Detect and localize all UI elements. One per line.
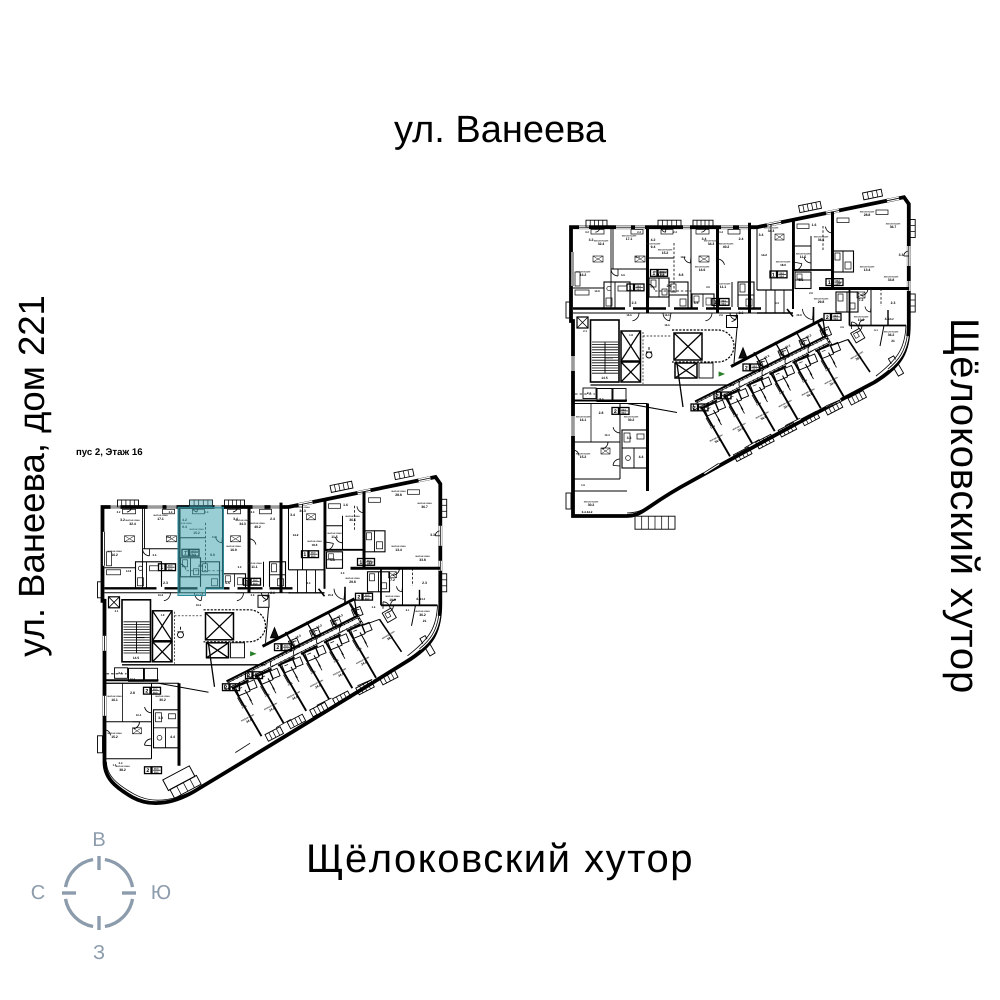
svg-text:ЖИЛАЯ КОМН: ЖИЛАЯ КОМН: [886, 222, 901, 225]
svg-text:2: 2: [145, 689, 148, 695]
svg-text:2.4: 2.4: [169, 511, 173, 514]
svg-text:ЖИЛАЯ КОМН: ЖИЛАЯ КОМН: [622, 234, 637, 237]
svg-text:00.0: 00.0: [621, 412, 626, 415]
svg-text:2: 2: [826, 315, 829, 321]
svg-text:2: 2: [693, 405, 696, 411]
svg-text:30.2: 30.2: [588, 503, 595, 507]
svg-text:5.5: 5.5: [153, 554, 157, 557]
svg-text:1: 1: [772, 272, 775, 278]
svg-text:ЖИЛАЯ КОМН: ЖИЛАЯ КОМН: [860, 265, 875, 268]
svg-text:ЖИЛАЯ КОМН: ЖИЛАЯ КОМН: [658, 248, 673, 251]
svg-text:8.8: 8.8: [679, 273, 684, 277]
svg-text:00.0: 00.0: [621, 408, 626, 411]
svg-text:ЖИЛАЯ КОМН: ЖИЛАЯ КОМН: [345, 577, 360, 580]
svg-text:00.0: 00.0: [168, 568, 173, 571]
svg-text:3.3: 3.3: [307, 582, 311, 585]
svg-text:00.0: 00.0: [255, 673, 260, 676]
svg-text:1: 1: [245, 580, 248, 586]
svg-text:9.4: 9.4: [651, 245, 656, 249]
svg-text:ЖИЛАЯ КОМН: ЖИЛАЯ КОМН: [391, 545, 406, 548]
svg-text:29.8: 29.8: [818, 300, 825, 304]
svg-text:3.4: 3.4: [759, 233, 764, 237]
svg-text:00.0: 00.0: [311, 552, 316, 555]
svg-text:ЖИЛАЯ КОМН: ЖИЛАЯ КОМН: [391, 490, 406, 493]
svg-text:10.6: 10.6: [389, 598, 396, 602]
svg-text:ЖИЛАЯ КОМН: ЖИЛАЯ КОМН: [576, 452, 591, 455]
svg-text:00.0: 00.0: [154, 768, 159, 771]
svg-text:2.4: 2.4: [637, 231, 641, 234]
svg-text:2: 2: [716, 393, 719, 399]
svg-text:2.3: 2.3: [163, 581, 168, 585]
svg-text:2.8: 2.8: [130, 691, 135, 695]
svg-text:16.6: 16.6: [196, 604, 202, 607]
svg-text:ЖИЛАЯ КОМН: ЖИЛАЯ КОМН: [796, 252, 811, 255]
svg-text:2.1: 2.1: [118, 671, 123, 675]
svg-text:2.6: 2.6: [840, 326, 844, 329]
svg-text:2.4: 2.4: [270, 517, 275, 521]
svg-text:36.5: 36.5: [818, 238, 825, 242]
svg-text:ЖИЛАЯ КОМН: ЖИЛАЯ КОМН: [417, 502, 432, 505]
svg-text:5.5: 5.5: [621, 274, 625, 277]
svg-text:16.2: 16.2: [580, 273, 587, 277]
svg-text:ЖИЛАЯ КОМН: ЖИЛАЯ КОМН: [854, 315, 869, 318]
svg-text:2: 2: [357, 595, 360, 601]
svg-text:34.3: 34.3: [708, 242, 715, 246]
svg-text:00.0: 00.0: [255, 676, 260, 679]
svg-text:00.0: 00.0: [311, 555, 316, 558]
svg-text:ЖИЛАЯ КОМН: ЖИЛАЯ КОМН: [345, 515, 360, 518]
svg-text:3.2: 3.2: [120, 518, 125, 522]
svg-text:ЖИЛАЯ КОМН: ЖИЛАЯ КОМН: [814, 235, 829, 238]
svg-text:пус 2, Этаж 16: пус 2, Этаж 16: [76, 447, 143, 458]
svg-text:2: 2: [146, 768, 149, 774]
svg-text:ЖИЛАЯ КОМН: ЖИЛАЯ КОМН: [385, 595, 400, 598]
svg-text:ЖИЛАЯ КОМН: ЖИЛАЯ КОМН: [295, 506, 310, 509]
svg-text:2.6: 2.6: [739, 311, 744, 315]
svg-text:13.2: 13.2: [420, 597, 426, 601]
svg-text:16.6: 16.6: [664, 324, 670, 327]
svg-text:1.6: 1.6: [812, 223, 817, 227]
svg-text:ЖИЛАЯ КОМН: ЖИЛАЯ КОМН: [776, 260, 791, 263]
svg-text:40.2: 40.2: [254, 525, 261, 529]
svg-text:36.2: 36.2: [888, 333, 895, 337]
svg-text:ЖИЛАЯ КОМН: ЖИЛАЯ КОМН: [415, 555, 430, 558]
svg-text:3.8: 3.8: [837, 282, 841, 285]
svg-text:00.0: 00.0: [253, 579, 258, 582]
svg-text:3.4: 3.4: [290, 513, 295, 517]
svg-text:2.3: 2.3: [891, 301, 896, 305]
svg-text:3.4: 3.4: [719, 231, 723, 234]
svg-text:ЖИЛАЯ КОМН: ЖИЛАЯ КОМН: [415, 610, 430, 613]
svg-text:1: 1: [303, 552, 306, 558]
svg-text:32.4: 32.4: [129, 522, 136, 526]
svg-text:00.0: 00.0: [153, 692, 158, 695]
svg-text:34.3: 34.3: [768, 229, 775, 233]
svg-text:2: 2: [745, 365, 748, 371]
svg-text:18.6: 18.6: [780, 263, 786, 267]
svg-text:21: 21: [891, 339, 895, 343]
svg-text:ЖИЛАЯ КОМН: ЖИЛАЯ КОМН: [860, 210, 875, 213]
svg-text:В: В: [92, 829, 105, 851]
svg-text:ЖИЛАЯ КОМН: ЖИЛАЯ КОМН: [107, 695, 122, 698]
svg-text:ЖИЛАЯ КОМН: ЖИЛАЯ КОМН: [307, 540, 322, 543]
svg-text:ЖИЛАЯ КОМН: ЖИЛАЯ КОМН: [576, 415, 591, 418]
svg-text:00.0: 00.0: [154, 771, 159, 774]
svg-text:00.0: 00.0: [253, 583, 258, 586]
svg-text:2.0: 2.0: [809, 292, 813, 295]
svg-text:ЖИЛАЯ КОМН: ЖИЛАЯ КОМН: [884, 275, 899, 278]
svg-text:1: 1: [359, 560, 362, 566]
svg-text:2.6: 2.6: [372, 606, 376, 609]
svg-text:ЖИЛАЯ КОМН: ЖИЛАЯ КОМН: [719, 242, 734, 245]
svg-text:33.8: 33.8: [888, 278, 895, 282]
svg-text:4.4: 4.4: [639, 455, 644, 459]
svg-text:1.6: 1.6: [343, 503, 348, 507]
svg-text:14.2: 14.2: [761, 253, 767, 257]
svg-text:15.2: 15.2: [111, 735, 118, 739]
svg-text:00.0: 00.0: [833, 318, 838, 321]
svg-text:ЖИЛАЯ КОМН: ЖИЛАЯ КОМН: [250, 522, 265, 525]
svg-text:00.0: 00.0: [752, 368, 757, 371]
svg-text:00.0: 00.0: [232, 688, 237, 691]
svg-text:28.8: 28.8: [395, 493, 402, 497]
svg-text:1: 1: [714, 300, 717, 306]
svg-text:00.0: 00.0: [779, 272, 784, 275]
svg-text:ЖИЛАЯ КОМН: ЖИЛАЯ КОМН: [327, 532, 342, 535]
svg-text:6.1: 6.1: [874, 329, 878, 332]
svg-text:5.6: 5.6: [330, 558, 335, 562]
svg-text:14.5: 14.5: [133, 656, 139, 660]
svg-text:2.0: 2.0: [341, 572, 345, 575]
svg-text:2: 2: [247, 673, 250, 679]
svg-text:17.1: 17.1: [626, 237, 633, 241]
svg-text:ЖИЛАЯ КОМН: ЖИЛАЯ КОМН: [584, 500, 599, 503]
svg-text:ЖИЛАЯ КОМН: ЖИЛАЯ КОМН: [576, 270, 591, 273]
svg-text:3.0: 3.0: [706, 286, 710, 289]
svg-text:ЖИЛАЯ КОМН: ЖИЛАЯ КОМН: [764, 226, 779, 229]
svg-text:10.4: 10.4: [136, 714, 142, 717]
svg-text:ул. Ванеева, дом 221: ул. Ванеева, дом 221: [11, 295, 52, 657]
svg-text:14.8: 14.8: [594, 290, 600, 293]
svg-text:2.3: 2.3: [422, 581, 427, 585]
svg-text:21: 21: [423, 619, 427, 623]
svg-text:2.1: 2.1: [115, 610, 119, 613]
svg-text:6.1: 6.1: [406, 609, 410, 612]
svg-text:00.0: 00.0: [168, 565, 173, 568]
svg-text:Щёлоковский хутор: Щёлоковский хутор: [942, 318, 986, 694]
svg-text:2.1: 2.1: [587, 391, 592, 395]
svg-text:3.4: 3.4: [251, 511, 255, 514]
svg-text:00.0: 00.0: [779, 275, 784, 278]
svg-text:2.4: 2.4: [739, 237, 744, 241]
svg-text:ЖИЛАЯ КОМН: ЖИЛАЯ КОМН: [594, 239, 609, 242]
svg-text:36.7: 36.7: [421, 505, 428, 509]
svg-text:3.8: 3.8: [369, 562, 373, 565]
svg-text:Щёлоковский хутор: Щёлоковский хутор: [306, 837, 694, 881]
svg-text:14.5: 14.5: [601, 376, 607, 380]
svg-text:34.3: 34.3: [239, 522, 246, 526]
svg-text:00.0: 00.0: [723, 396, 728, 399]
svg-text:С: С: [31, 882, 45, 904]
svg-text:ЖИЛАЯ КОМН: ЖИЛАЯ КОМН: [704, 239, 719, 242]
svg-text:5.6: 5.6: [799, 278, 804, 282]
svg-text:3.3: 3.3: [430, 533, 435, 537]
svg-text:16.9: 16.9: [230, 548, 237, 552]
svg-text:16.2: 16.2: [111, 553, 118, 557]
svg-text:10.1: 10.1: [680, 256, 686, 259]
svg-text:11.5: 11.5: [331, 535, 338, 539]
svg-text:11.5: 11.5: [800, 255, 807, 259]
svg-text:16.6: 16.6: [158, 594, 164, 597]
svg-text:00.0: 00.0: [232, 685, 237, 688]
svg-text:00.0: 00.0: [721, 299, 726, 302]
svg-text:ЖИЛАЯ КОМН: ЖИЛАЯ КОМН: [155, 695, 170, 698]
svg-text:16.6: 16.6: [598, 398, 604, 401]
svg-text:3.3: 3.3: [158, 716, 163, 720]
svg-text:3.4: 3.4: [119, 761, 123, 765]
svg-text:13.2: 13.2: [888, 317, 894, 321]
svg-text:7.2: 7.2: [859, 298, 864, 302]
svg-text:2.3: 2.3: [632, 301, 637, 305]
svg-text:10.4: 10.4: [604, 434, 610, 437]
svg-text:29.8: 29.8: [796, 314, 802, 317]
svg-text:00.0: 00.0: [636, 288, 641, 291]
svg-text:29.8: 29.8: [328, 594, 334, 597]
svg-text:ЖИЛАЯ КОМН: ЖИЛАЯ КОМН: [153, 514, 168, 517]
svg-text:3.3: 3.3: [775, 302, 779, 305]
svg-text:16.4: 16.4: [634, 256, 640, 259]
svg-text:15.2: 15.2: [662, 251, 669, 255]
svg-text:2: 2: [224, 685, 227, 691]
svg-text:00.0: 00.0: [723, 393, 728, 396]
svg-text:ЖИЛАЯ КОМН: ЖИЛАЯ КОМН: [247, 562, 262, 565]
svg-text:З: З: [93, 942, 105, 964]
svg-text:1.6: 1.6: [581, 484, 585, 487]
svg-text:3.2: 3.2: [589, 238, 594, 242]
svg-text:00.0: 00.0: [284, 645, 289, 648]
svg-text:34.3: 34.3: [299, 509, 306, 513]
svg-text:28.8: 28.8: [864, 213, 871, 217]
svg-text:16.6: 16.6: [626, 314, 632, 317]
svg-text:16.9: 16.9: [699, 268, 706, 272]
svg-text:16.6: 16.6: [664, 314, 670, 317]
svg-text:38.2: 38.2: [119, 768, 126, 772]
svg-text:32.4: 32.4: [598, 242, 605, 246]
svg-text:00.0: 00.0: [721, 303, 726, 306]
svg-text:2.8: 2.8: [599, 411, 604, 415]
svg-text:ЖИЛАЯ КОМН: ЖИЛАЯ КОМН: [125, 519, 140, 522]
svg-text:00.0: 00.0: [752, 365, 757, 368]
svg-text:14.2: 14.2: [293, 533, 299, 537]
svg-text:00.0: 00.0: [284, 648, 289, 651]
svg-text:36.2: 36.2: [419, 613, 426, 617]
svg-text:1.6: 1.6: [113, 764, 117, 767]
svg-text:10.6: 10.6: [858, 318, 865, 322]
svg-text:16.6: 16.6: [130, 678, 136, 681]
svg-text:3.3: 3.3: [627, 436, 632, 440]
svg-text:36.5: 36.5: [349, 518, 356, 522]
svg-text:00.0: 00.0: [153, 688, 158, 691]
svg-text:1.8: 1.8: [629, 334, 633, 337]
svg-text:2.6: 2.6: [270, 591, 275, 595]
svg-text:16.4: 16.4: [166, 536, 172, 539]
svg-text:ЖИЛАЯ КОМН: ЖИЛАЯ КОМН: [654, 270, 669, 273]
svg-text:4.4: 4.4: [170, 735, 175, 739]
svg-text:2.6: 2.6: [251, 594, 255, 597]
svg-text:1: 1: [160, 565, 163, 571]
svg-text:4.2: 4.2: [651, 238, 656, 242]
svg-text:ЖИЛАЯ КОМН: ЖИЛАЯ КОМН: [107, 732, 122, 735]
svg-text:16.1: 16.1: [580, 418, 587, 422]
svg-text:ЖИЛАЯ КОМН: ЖИЛАЯ КОМН: [226, 545, 241, 548]
svg-text:11.1: 11.1: [251, 565, 258, 569]
svg-text:ЖИЛАЯ КОМН: ЖИЛАЯ КОМН: [235, 519, 250, 522]
svg-text:ЖИЛАЯ КОМН: ЖИЛАЯ КОМН: [624, 415, 639, 418]
svg-text:1: 1: [629, 285, 632, 291]
svg-text:7.2: 7.2: [390, 578, 395, 582]
svg-text:00.0: 00.0: [700, 408, 705, 411]
svg-text:Ю: Ю: [151, 882, 171, 904]
svg-text:3.0: 3.0: [238, 566, 242, 569]
svg-text:2.4: 2.4: [673, 231, 677, 234]
svg-text:15.2: 15.2: [580, 455, 587, 459]
svg-text:2.9: 2.9: [667, 284, 672, 288]
svg-text:1.8: 1.8: [161, 614, 165, 617]
svg-text:14.8: 14.8: [126, 570, 132, 573]
svg-text:00.0: 00.0: [700, 405, 705, 408]
svg-text:00.0: 00.0: [365, 594, 370, 597]
svg-text:3.3: 3.3: [899, 253, 904, 257]
svg-text:ЖИЛАЯ КОМН: ЖИЛАЯ КОМН: [695, 265, 710, 268]
svg-text:ЖИЛАЯ КОМН: ЖИЛАЯ КОМН: [646, 242, 661, 245]
svg-text:3.2: 3.2: [585, 231, 589, 234]
svg-text:2.1: 2.1: [583, 330, 587, 333]
svg-text:29.8: 29.8: [349, 580, 356, 584]
svg-text:2.6: 2.6: [719, 314, 723, 317]
svg-text:00.0: 00.0: [365, 598, 370, 601]
svg-text:ул. Ванеева: ул. Ванеева: [394, 109, 607, 151]
svg-text:00.0: 00.0: [636, 285, 641, 288]
svg-text:30.2: 30.2: [159, 698, 166, 702]
svg-text:ЖИЛАЯ КОМН: ЖИЛАЯ КОМН: [107, 550, 122, 553]
svg-text:17.3: 17.3: [658, 273, 665, 277]
svg-text:40.2: 40.2: [723, 245, 730, 249]
svg-text:13.4: 13.4: [864, 268, 871, 272]
svg-text:18.6: 18.6: [312, 543, 318, 547]
svg-text:ЖИЛАЯ КОМН: ЖИЛАЯ КОМН: [814, 297, 829, 300]
svg-text:ЖИЛАЯ КОМН: ЖИЛАЯ КОМН: [716, 282, 731, 285]
svg-text:11.1: 11.1: [720, 285, 727, 289]
svg-text:33.8: 33.8: [419, 558, 426, 562]
svg-text:2: 2: [614, 409, 617, 415]
svg-text:2: 2: [276, 645, 279, 651]
svg-text:ЖИЛАЯ КОМН: ЖИЛАЯ КОМН: [115, 765, 130, 768]
svg-text:16.1: 16.1: [111, 698, 118, 702]
svg-text:3.4 44.2: 3.4 44.2: [582, 510, 593, 514]
svg-text:30.2: 30.2: [628, 418, 635, 422]
svg-text:5.5: 5.5: [225, 581, 230, 585]
svg-text:13.4: 13.4: [395, 548, 402, 552]
svg-text:36.7: 36.7: [890, 225, 897, 229]
svg-text:ЖИЛАЯ КОМН: ЖИЛАЯ КОМН: [884, 330, 899, 333]
svg-text:3.2: 3.2: [117, 511, 121, 514]
svg-text:00.0: 00.0: [833, 314, 838, 317]
svg-text:5.5: 5.5: [694, 301, 699, 305]
svg-text:17.1: 17.1: [157, 517, 164, 521]
svg-text:1: 1: [828, 280, 831, 286]
